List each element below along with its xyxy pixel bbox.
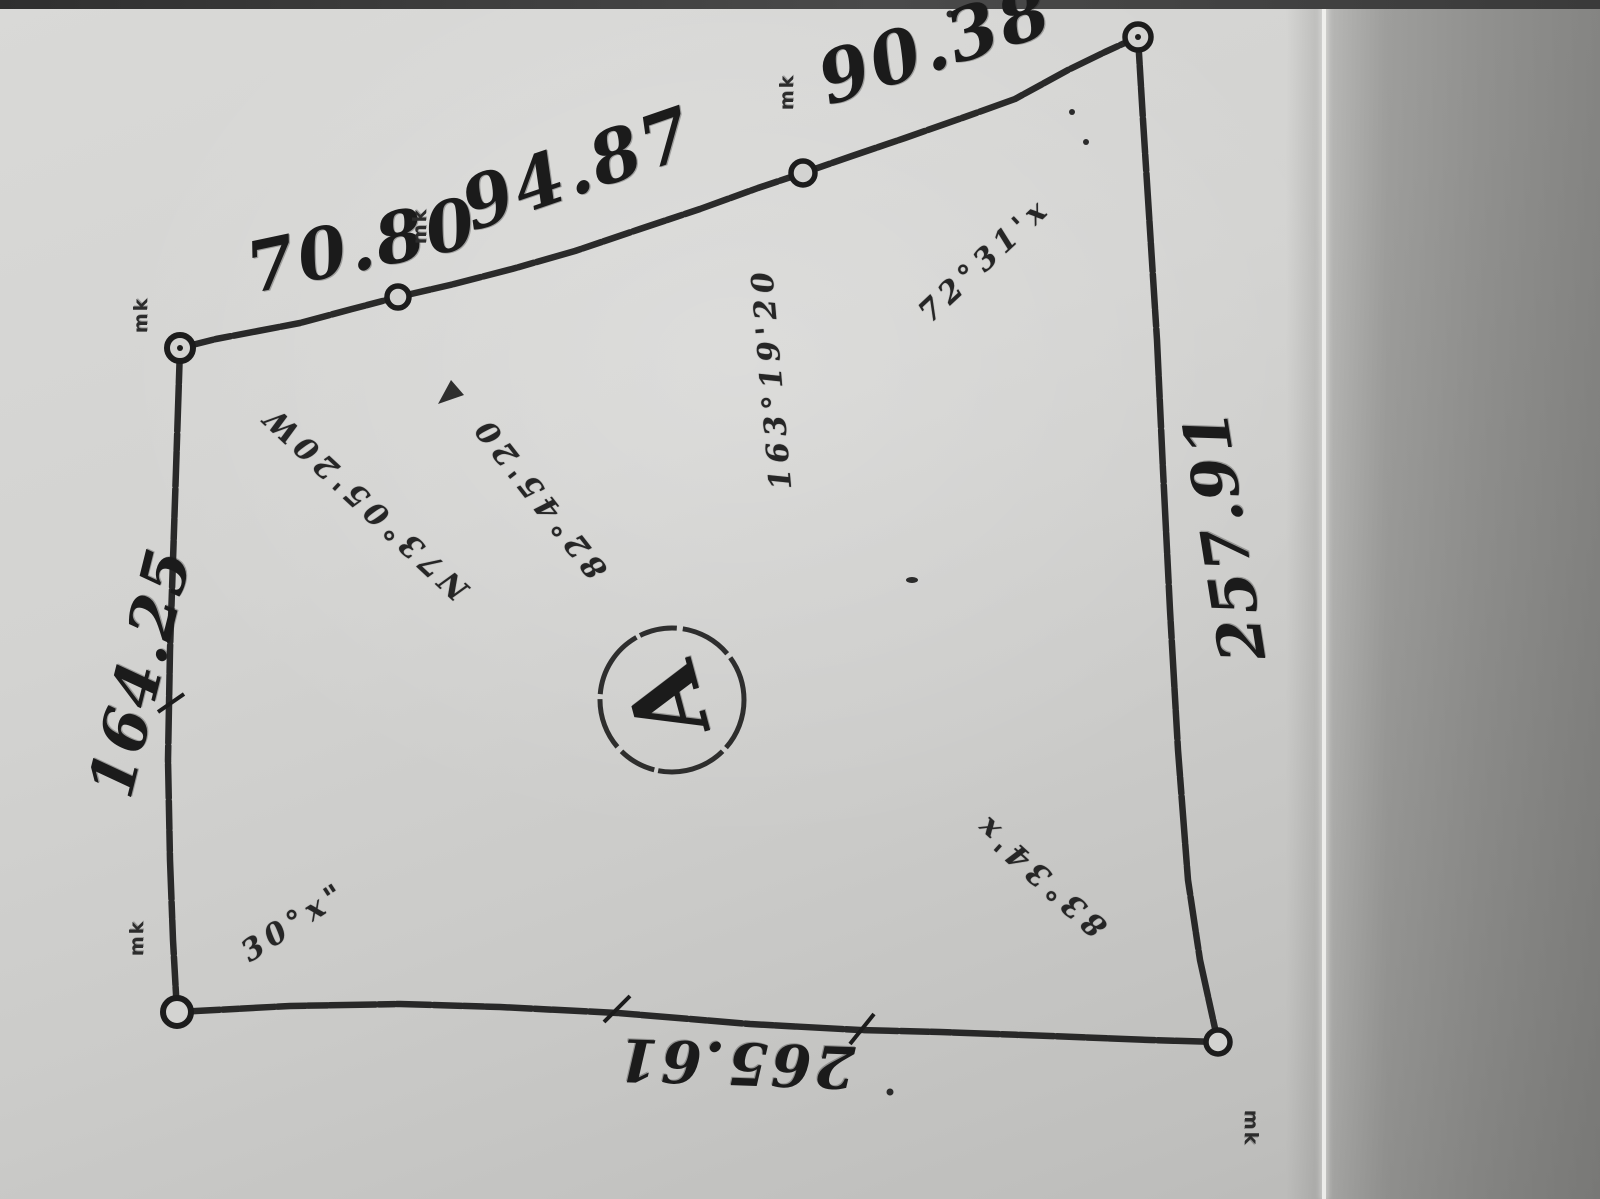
ink-speck bbox=[906, 577, 918, 583]
monument-top-left-dot bbox=[177, 345, 183, 351]
monument-bottom-left bbox=[163, 998, 191, 1026]
monument-top-right-dot bbox=[1135, 34, 1141, 40]
ink-speck bbox=[887, 1089, 894, 1096]
marker-note-mid-top-1: mk bbox=[409, 208, 431, 244]
scanned-plat-photo: 70.80 94.87 90.38 257.91 164.25 265.61 A… bbox=[0, 0, 1600, 1199]
ink-speck bbox=[1069, 109, 1075, 115]
monument-mid-top-1 bbox=[387, 286, 409, 308]
monument-mid-top-2 bbox=[791, 161, 815, 185]
parcel-outline-drawing bbox=[0, 0, 1600, 1199]
tick-bottom-1 bbox=[604, 996, 630, 1022]
ink-speck bbox=[1083, 139, 1089, 145]
marker-note-bottom-left: mk bbox=[126, 920, 148, 956]
marker-note-bottom-right: mk bbox=[1240, 1110, 1262, 1146]
marker-note-mid-top-2: mk bbox=[776, 74, 798, 110]
arrowhead-mark bbox=[438, 380, 464, 404]
length-bottom-side: 265.61 bbox=[614, 1025, 856, 1101]
monument-bottom-right bbox=[1206, 1030, 1230, 1054]
marker-note-top-left: mk bbox=[130, 297, 152, 333]
